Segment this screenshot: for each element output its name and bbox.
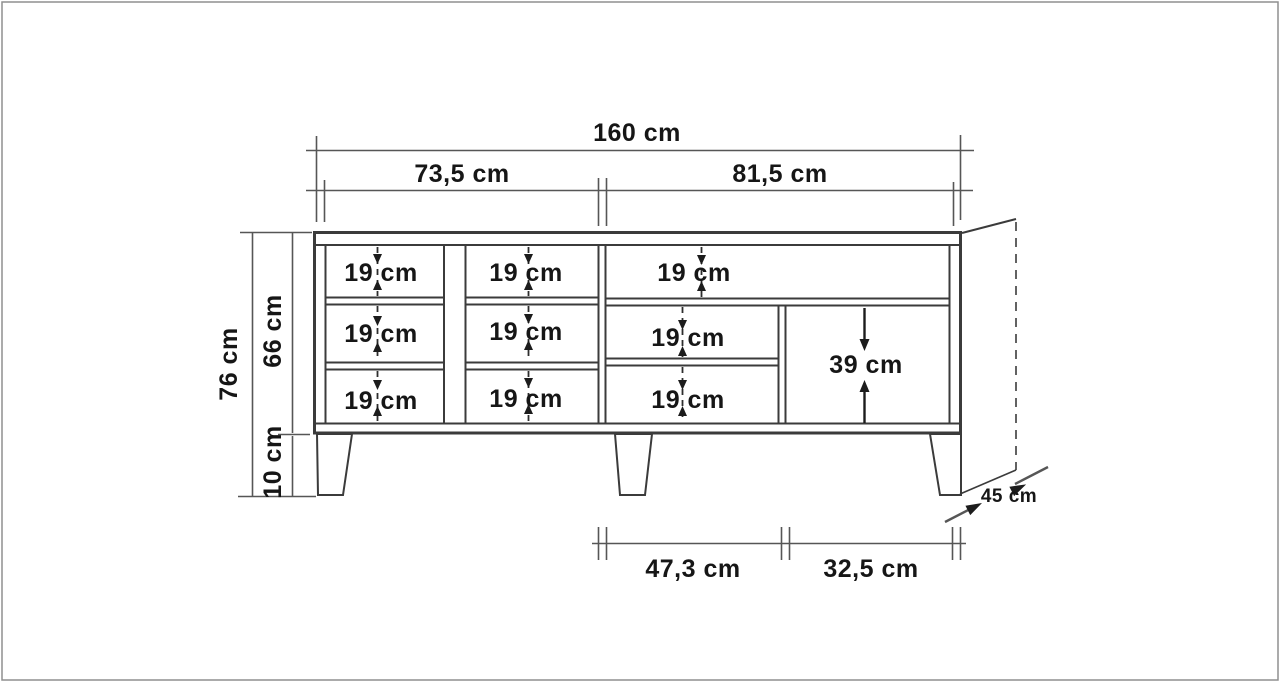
compartment-label: 19 cm — [489, 385, 562, 413]
label-total-height: 76 cm — [215, 327, 243, 400]
label-bottom-span-right: 32,5 cm — [823, 555, 918, 583]
compartment-label: 19 cm — [651, 386, 724, 414]
label-leg-height: 10 cm — [259, 425, 287, 498]
arrowhead-up — [860, 380, 870, 392]
technical-drawing-canvas: 160 cm 73,5 cm 81,5 cm 76 cm 66 cm 10 cm… — [0, 0, 1280, 682]
drawing-svg: 160 cm 73,5 cm 81,5 cm 76 cm 66 cm 10 cm… — [0, 0, 1280, 682]
compartment-label: 19 cm — [651, 324, 724, 352]
label-total-width: 160 cm — [593, 119, 681, 147]
side-panel-top-edge — [962, 219, 1016, 233]
leg-left — [317, 434, 352, 495]
leg-right — [930, 434, 961, 495]
compartment-label: 19 cm — [489, 318, 562, 346]
label-body-height: 66 cm — [259, 294, 287, 367]
label-left-section-width: 73,5 cm — [414, 160, 509, 188]
page-border — [2, 2, 1278, 680]
compartment-label: 19 cm — [344, 320, 417, 348]
label-depth: 45 cm — [981, 486, 1037, 507]
label-right-section-width: 81,5 cm — [732, 160, 827, 188]
compartment-label: 19 cm — [344, 387, 417, 415]
label-bottom-span-left: 47,3 cm — [645, 555, 740, 583]
label-right-compartment-height: 39 cm — [829, 351, 902, 379]
compartment-label: 19 cm — [657, 259, 730, 287]
compartment-label: 19 cm — [489, 259, 562, 287]
compartment-label: 19 cm — [344, 259, 417, 287]
leg-middle — [615, 434, 652, 495]
dim-line-depth-upper — [1015, 467, 1048, 484]
arrowhead-down — [860, 339, 870, 351]
